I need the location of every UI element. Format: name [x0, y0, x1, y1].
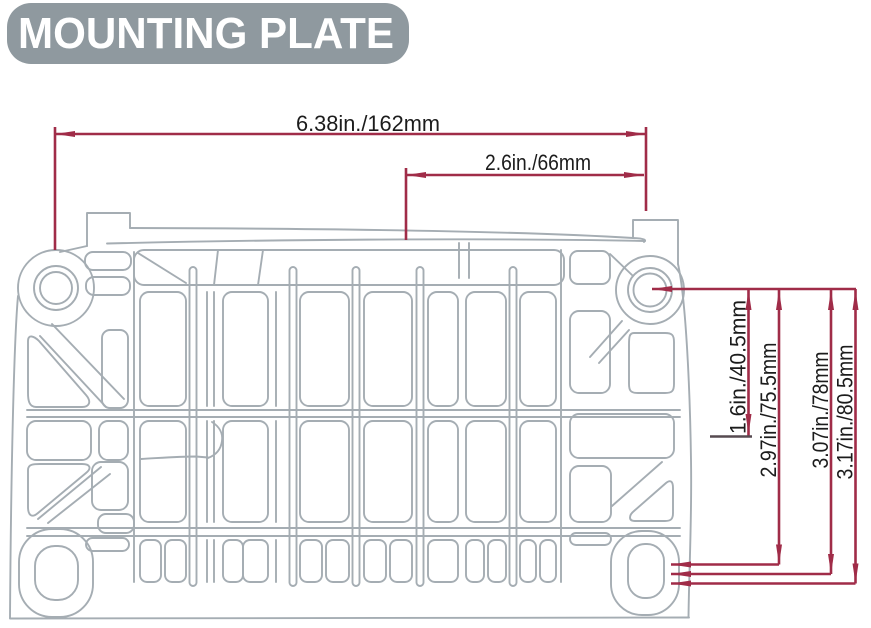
svg-text:2.97in./75.5mm: 2.97in./75.5mm [756, 343, 781, 478]
svg-text:6.38in./162mm: 6.38in./162mm [296, 111, 440, 136]
svg-text:1.6in./40.5mm: 1.6in./40.5mm [726, 300, 751, 434]
svg-text:3.17in./80.5mm: 3.17in./80.5mm [833, 345, 858, 480]
svg-text:3.07in./78mm: 3.07in./78mm [808, 352, 833, 469]
svg-text:MOUNTING PLATE: MOUNTING PLATE [18, 9, 394, 58]
svg-text:2.6in./66mm: 2.6in./66mm [485, 150, 591, 175]
